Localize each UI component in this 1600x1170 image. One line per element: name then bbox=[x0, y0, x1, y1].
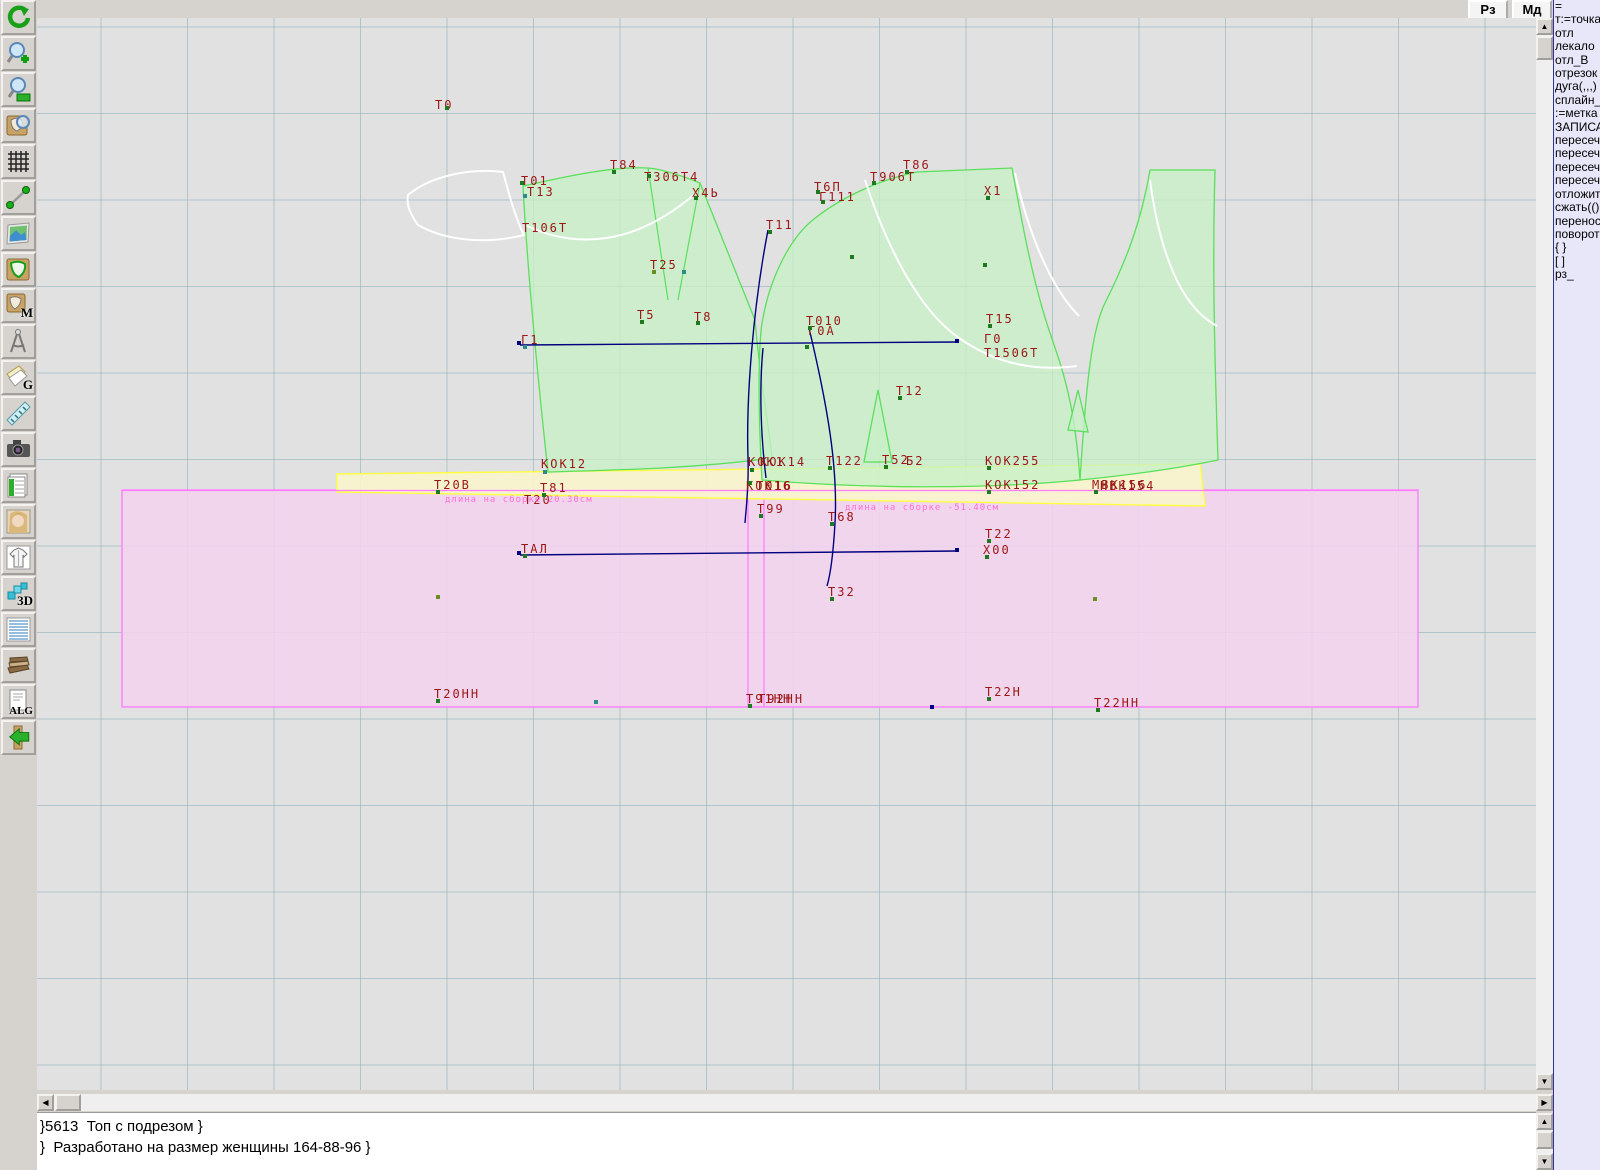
point-marker bbox=[872, 181, 876, 185]
text-scroll-down-icon[interactable]: ▼ bbox=[1536, 1153, 1553, 1170]
point-label: Т906Т bbox=[870, 170, 916, 184]
algorithm-label: ALG bbox=[9, 705, 33, 717]
point-label: Т92НН bbox=[758, 692, 804, 706]
text-vscroll-thumb[interactable] bbox=[1536, 1131, 1553, 1149]
point-label: КОК152 bbox=[985, 478, 1040, 492]
measurements-label: M bbox=[21, 305, 33, 321]
point-marker bbox=[830, 522, 834, 526]
3d-label: 3D bbox=[17, 593, 33, 609]
point-label: Т016 bbox=[756, 479, 793, 493]
point-label: Г0 bbox=[984, 332, 1002, 346]
table-icon[interactable] bbox=[1, 468, 36, 503]
point-marker bbox=[748, 704, 752, 708]
point-marker bbox=[436, 490, 440, 494]
gracia-icon[interactable]: G bbox=[1, 360, 36, 395]
point-label: КОК255 bbox=[985, 454, 1040, 468]
point-marker bbox=[543, 470, 547, 474]
point-label: Т20НН bbox=[434, 687, 480, 701]
point-label: КОК12 bbox=[541, 457, 587, 471]
point-marker bbox=[523, 345, 527, 349]
garment-icon[interactable] bbox=[1, 540, 36, 575]
panel-item[interactable]: { } bbox=[1554, 241, 1600, 254]
point-label: Т106Т bbox=[522, 221, 568, 235]
point-marker bbox=[828, 466, 832, 470]
label-layer: Т0Т84Т306Т4Х4ЬТ01Т13Т106ТТ86Т906ТТ6ПГ111… bbox=[37, 18, 1536, 1090]
panel-item[interactable]: отл bbox=[1554, 27, 1600, 40]
point-marker bbox=[517, 551, 521, 555]
point-label: КОК14 bbox=[760, 455, 806, 469]
point-label: Г0А bbox=[808, 324, 836, 338]
image-icon[interactable] bbox=[1, 216, 36, 251]
scroll-up-icon[interactable]: ▲ bbox=[1536, 18, 1553, 35]
point-marker bbox=[436, 699, 440, 703]
panel-item[interactable]: перенос bbox=[1554, 215, 1600, 228]
grid-icon[interactable] bbox=[1, 144, 36, 179]
point-marker bbox=[830, 597, 834, 601]
point-marker bbox=[436, 595, 440, 599]
point-marker bbox=[517, 341, 521, 345]
point-label: Б2 bbox=[906, 454, 924, 468]
point-label: Т306Т4 bbox=[644, 170, 699, 184]
point-marker bbox=[905, 170, 909, 174]
point-marker bbox=[542, 493, 546, 497]
status-text-area[interactable]: }5613 Топ с подрезом } } Разработано на … bbox=[37, 1112, 1536, 1170]
gather-length-note: длина на сборке -51.40см bbox=[845, 503, 999, 513]
point-marker bbox=[1094, 490, 1098, 494]
panel-item[interactable]: сплайн_ bbox=[1554, 94, 1600, 107]
zoom-in-icon[interactable] bbox=[1, 36, 36, 71]
point-label: Т1506Т bbox=[984, 346, 1039, 360]
point-marker bbox=[640, 320, 644, 324]
panel-item[interactable]: отрезок bbox=[1554, 67, 1600, 80]
panel-item[interactable]: рз_ bbox=[1554, 268, 1600, 281]
books-icon[interactable] bbox=[1, 648, 36, 683]
scroll-down-icon[interactable]: ▼ bbox=[1536, 1073, 1553, 1090]
point-marker bbox=[652, 270, 656, 274]
panel-item[interactable]: отл_В bbox=[1554, 54, 1600, 67]
compass-icon[interactable] bbox=[1, 324, 36, 359]
point-marker bbox=[523, 554, 527, 558]
gracia-label: G bbox=[23, 377, 33, 393]
command-panel: =т:=точкаотллекалоотл_Вотрезокдуга(,,,)с… bbox=[1553, 0, 1600, 1170]
point-marker bbox=[694, 196, 698, 200]
status-line-2: } Разработано на размер женщины 164-88-9… bbox=[40, 1137, 1536, 1158]
point-marker bbox=[983, 263, 987, 267]
piece-preview-icon[interactable] bbox=[1, 108, 36, 143]
point-marker bbox=[750, 468, 754, 472]
status-line-1: }5613 Топ с подрезом } bbox=[40, 1116, 1536, 1137]
toolbar: M G 3D bbox=[0, 0, 37, 1170]
point-marker bbox=[594, 700, 598, 704]
point-marker bbox=[1093, 597, 1097, 601]
point-marker bbox=[821, 200, 825, 204]
point-marker bbox=[612, 170, 616, 174]
vscroll-thumb[interactable] bbox=[1536, 36, 1553, 60]
panel-item[interactable]: т:=точка bbox=[1554, 13, 1600, 26]
exit-icon[interactable] bbox=[1, 720, 36, 755]
point-marker bbox=[987, 490, 991, 494]
gather-length-note: длина на сборке 20.30см bbox=[445, 495, 593, 505]
point-marker bbox=[955, 548, 959, 552]
point-marker bbox=[696, 321, 700, 325]
rz-button[interactable]: Рз bbox=[1468, 0, 1508, 20]
point-marker bbox=[898, 396, 902, 400]
point-label: НВК154 bbox=[1100, 479, 1155, 493]
scroll-right-icon[interactable]: ▶ bbox=[1536, 1094, 1553, 1111]
zoom-out-icon[interactable] bbox=[1, 72, 36, 107]
point-marker bbox=[884, 465, 888, 469]
point-label: Т13 bbox=[527, 185, 555, 199]
point-marker bbox=[682, 270, 686, 274]
point-marker bbox=[987, 697, 991, 701]
point-marker bbox=[987, 466, 991, 470]
point-marker bbox=[759, 514, 763, 518]
point-marker bbox=[986, 196, 990, 200]
point-marker bbox=[805, 345, 809, 349]
point-marker bbox=[768, 230, 772, 234]
panel-item[interactable]: пересеч bbox=[1554, 147, 1600, 160]
md-button[interactable]: Мд bbox=[1512, 0, 1552, 20]
point-marker bbox=[987, 539, 991, 543]
panel-item[interactable]: :=метка bbox=[1554, 107, 1600, 120]
panel-item[interactable]: пересеч bbox=[1554, 134, 1600, 147]
panel-item[interactable]: дуга(,,,) bbox=[1554, 80, 1600, 93]
panel-item[interactable]: пересеч bbox=[1554, 161, 1600, 174]
point-marker bbox=[1096, 708, 1100, 712]
panel-item[interactable]: сжать(() bbox=[1554, 201, 1600, 214]
segment-icon[interactable] bbox=[1, 180, 36, 215]
point-marker bbox=[988, 324, 992, 328]
app-window: M G 3D bbox=[0, 0, 1600, 1170]
text-scroll-up-icon[interactable]: ▲ bbox=[1536, 1113, 1553, 1130]
point-marker bbox=[647, 174, 651, 178]
point-marker bbox=[445, 106, 449, 110]
canvas-vscrollbar[interactable] bbox=[1536, 18, 1553, 1090]
panel-item[interactable]: [ ] bbox=[1554, 255, 1600, 268]
hscroll-thumb[interactable] bbox=[55, 1094, 81, 1111]
panel-item[interactable]: = bbox=[1554, 0, 1600, 13]
camera-icon[interactable] bbox=[1, 432, 36, 467]
point-marker bbox=[816, 190, 820, 194]
algorithm-icon[interactable]: ALG bbox=[1, 684, 36, 719]
panel-item[interactable]: пересеч bbox=[1554, 174, 1600, 187]
point-marker bbox=[930, 705, 934, 709]
panel-item[interactable]: лекало bbox=[1554, 40, 1600, 53]
point-marker bbox=[955, 339, 959, 343]
ruler-icon[interactable] bbox=[1, 396, 36, 431]
refresh-icon[interactable] bbox=[1, 0, 36, 35]
panel-item[interactable]: отложит bbox=[1554, 188, 1600, 201]
list-icon[interactable] bbox=[1, 612, 36, 647]
point-marker bbox=[850, 255, 854, 259]
canvas-hscrollbar[interactable] bbox=[37, 1094, 1536, 1111]
panel-item[interactable]: ЗАПИСА bbox=[1554, 121, 1600, 134]
point-marker bbox=[808, 326, 812, 330]
point-label: Т22НН bbox=[1094, 696, 1140, 710]
point-marker bbox=[985, 555, 989, 559]
portrait-icon[interactable] bbox=[1, 504, 36, 539]
point-marker bbox=[520, 181, 524, 185]
panel-item[interactable]: поворот bbox=[1554, 228, 1600, 241]
point-marker bbox=[748, 481, 752, 485]
measurements-icon[interactable]: M bbox=[1, 288, 36, 323]
drawing-canvas[interactable]: Т0Т84Т306Т4Х4ЬТ01Т13Т106ТТ86Т906ТТ6ПГ111… bbox=[37, 18, 1536, 1090]
point-marker bbox=[523, 194, 527, 198]
scroll-left-icon[interactable]: ◀ bbox=[37, 1094, 54, 1111]
3d-icon[interactable]: 3D bbox=[1, 576, 36, 611]
pattern-piece-icon[interactable] bbox=[1, 252, 36, 287]
